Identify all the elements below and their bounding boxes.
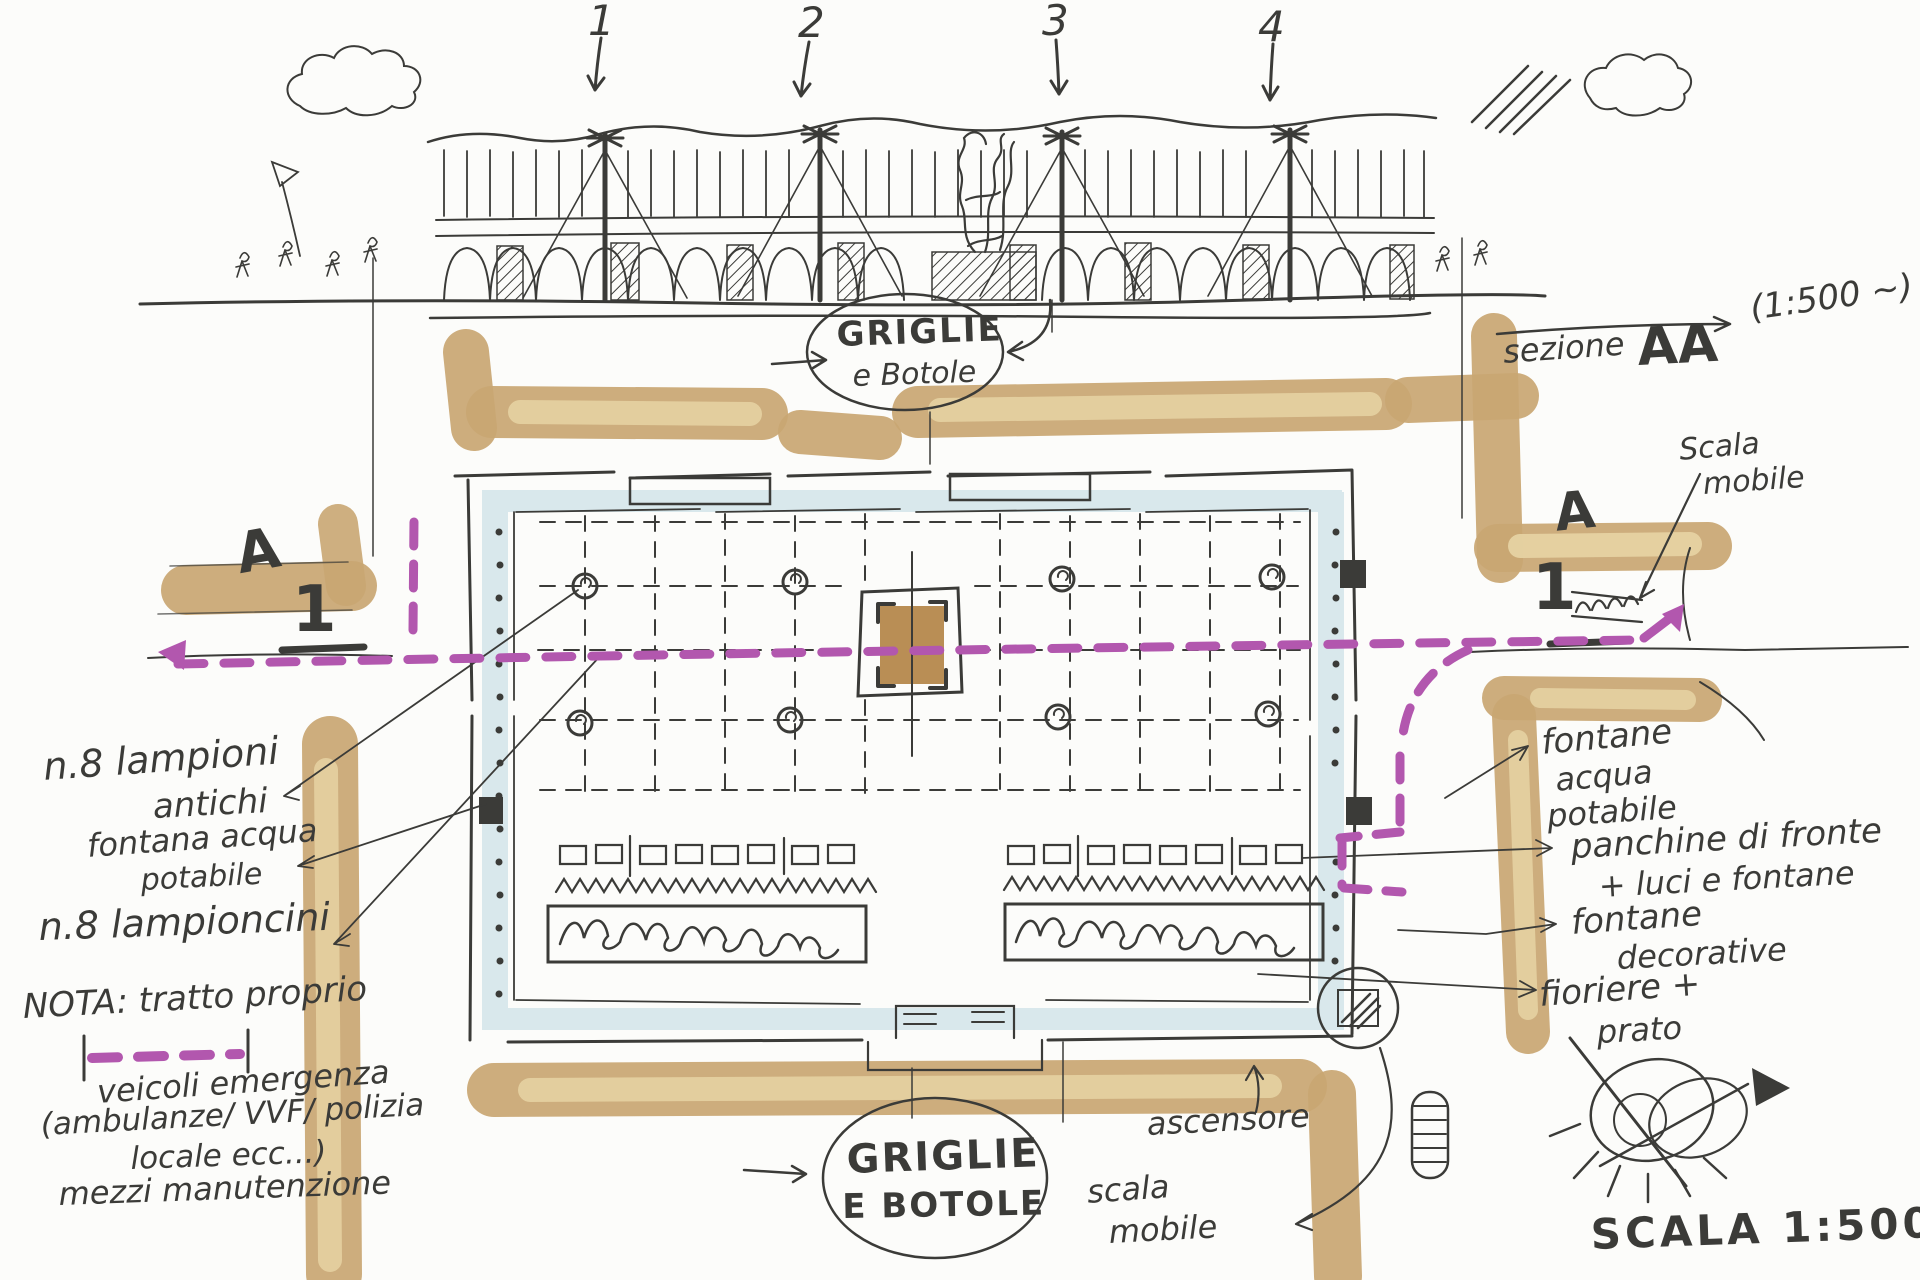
label-scala-mobile-top-1: Scala [1678,429,1761,466]
bottom-ellipse-line2: E BOTOLE [842,1186,1045,1224]
note-fioriere-line2: prato [1596,1012,1683,1048]
north-compass [1550,1038,1790,1202]
section-label: sezione [1502,328,1626,368]
note-fontane-line1: fontane [1540,715,1673,760]
callout-number-3: 3 [1042,0,1069,42]
marker-number-left: 1 [292,578,337,642]
cloud-right [1472,54,1691,134]
north-arrowhead [1752,1068,1790,1106]
plan-scale: SCALA 1:500 ~ [1590,1200,1920,1256]
section-name: AA [1636,318,1719,374]
label-scala-mobile-top-2: mobile [1702,463,1806,500]
ascensore-symbol [1412,1092,1448,1178]
note-lampioncini: n.8 lampioncini [38,898,331,946]
statue-sketch [958,132,1014,252]
label-ascensore: ascensore [1146,1099,1310,1139]
marker-number-right: 1 [1532,556,1577,620]
column-dots [496,529,1340,998]
bottom-ellipse-line1: GRIGLIE [846,1133,1040,1180]
callout-arrows [588,38,1278,100]
callout-number-1: 1 [588,0,615,42]
note-decorative-line1: fontane [1570,897,1703,940]
label-scala-mobile-bottom-1: scala [1086,1170,1170,1208]
top-ellipse-line1: GRIGLIE [836,312,1003,352]
zigzag-hedges [556,877,1324,892]
callout-number-2: 2 [798,2,825,44]
bench-rows [560,836,1302,876]
top-ellipse-line2: e Botole [852,358,977,392]
label-scala-mobile-bottom-2: mobile [1108,1210,1218,1248]
marker-letter-right: A [1552,484,1597,540]
note-fioriere-line1: fioriere + [1538,967,1701,1012]
note-fontana-line2: potabile [140,860,263,896]
cloud-left [287,46,420,115]
sketch-plan-page: 1 2 3 4 GRIGLIE e Botole sezione AA (1:5… [0,0,1920,1280]
planter-boxes [548,904,1323,962]
callout-number-4: 4 [1258,6,1285,48]
